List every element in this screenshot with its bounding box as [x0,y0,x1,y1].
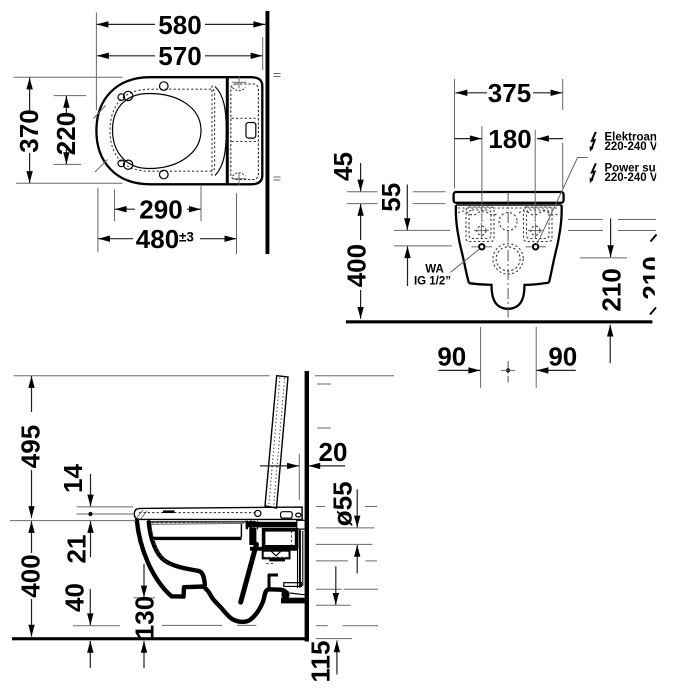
svg-text:±3: ±3 [179,230,194,245]
svg-text:580: 580 [158,10,201,40]
svg-text:14: 14 [58,464,88,493]
svg-text:IG 1/2”: IG 1/2” [414,276,451,288]
svg-text:480: 480 [136,224,179,254]
svg-text:370: 370 [14,109,44,152]
svg-text:400: 400 [15,554,45,597]
svg-text:90: 90 [548,342,577,372]
svg-text:20: 20 [319,437,348,467]
svg-text:ø55: ø55 [327,481,357,526]
svg-text:570: 570 [158,41,201,71]
svg-text:220: 220 [51,112,81,155]
svg-text:210: 210 [596,268,626,311]
svg-text:115: 115 [305,641,335,683]
svg-text:220-240 V: 220-240 V [605,172,658,184]
svg-text:130: 130 [129,596,159,639]
svg-text:40: 40 [59,583,89,612]
svg-text:495: 495 [15,425,45,468]
svg-text:90: 90 [437,342,466,372]
svg-text:375: 375 [488,78,531,108]
svg-text:400: 400 [341,244,371,287]
svg-text:290: 290 [139,195,182,225]
svg-text:21: 21 [61,535,91,564]
svg-text:55: 55 [376,183,406,212]
svg-text:220-240 V: 220-240 V [605,141,658,153]
svg-text:180: 180 [488,124,531,154]
svg-text:WA: WA [425,263,444,275]
svg-text:45: 45 [328,152,358,181]
